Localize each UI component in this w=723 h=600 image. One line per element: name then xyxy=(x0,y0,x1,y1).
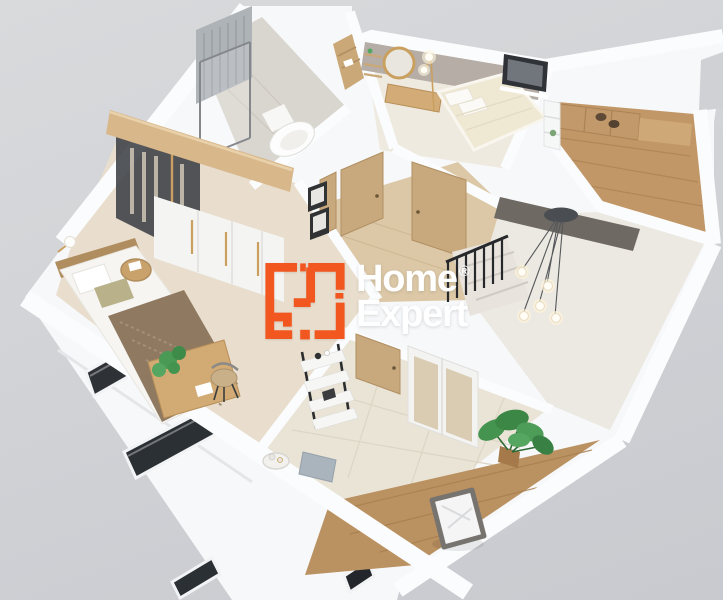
home-expert-watermark: Home® Expert xyxy=(265,262,470,340)
brand-line-2: Expert xyxy=(356,297,470,332)
kitchen-shelf-unit xyxy=(544,100,560,150)
logo-door-tab xyxy=(300,330,310,340)
serving-tray xyxy=(263,453,289,469)
laundry-basket xyxy=(432,490,484,551)
logo-outline-bottom-right xyxy=(315,303,341,335)
registered-mark: ® xyxy=(459,263,470,280)
floorplan-render: Home® Expert xyxy=(0,0,723,600)
roof-notch-background xyxy=(699,52,723,111)
hallway-door-handle xyxy=(392,366,396,370)
tray-bottle-1 xyxy=(269,454,275,460)
hallway-wardrobe-panel-2 xyxy=(446,368,472,442)
floorplan-logo-icon xyxy=(265,262,345,340)
door-right-handle xyxy=(416,210,420,214)
hallway-wardrobe-panel-1 xyxy=(414,356,438,430)
cooktop-burner-2 xyxy=(609,120,620,128)
shelf-vase-black xyxy=(315,353,321,359)
chair-seat xyxy=(211,369,237,387)
wall-lamp-shade xyxy=(65,237,76,248)
logo-nub-right xyxy=(335,293,343,299)
brand-wordmark: Home® Expert xyxy=(356,262,470,333)
brand-line-1: Home® xyxy=(356,262,470,297)
shelf-vase-white xyxy=(324,350,329,355)
facade-window-3 xyxy=(172,558,220,598)
door-left-handle xyxy=(375,194,379,198)
cooktop-burner-1 xyxy=(596,113,607,121)
round-wall-mirror xyxy=(384,48,414,78)
lamp-globe-1 xyxy=(425,53,433,61)
green-bottle xyxy=(550,130,556,136)
tray-bottle-2 xyxy=(278,458,283,463)
brand-word-bottom: Expert xyxy=(356,293,467,335)
logo-inner-walls xyxy=(270,267,311,326)
shelf-plant-dot xyxy=(368,49,373,54)
logo-nub-top xyxy=(300,263,306,271)
lamp-globe-2 xyxy=(421,67,428,74)
pendant-canopy xyxy=(544,208,578,223)
